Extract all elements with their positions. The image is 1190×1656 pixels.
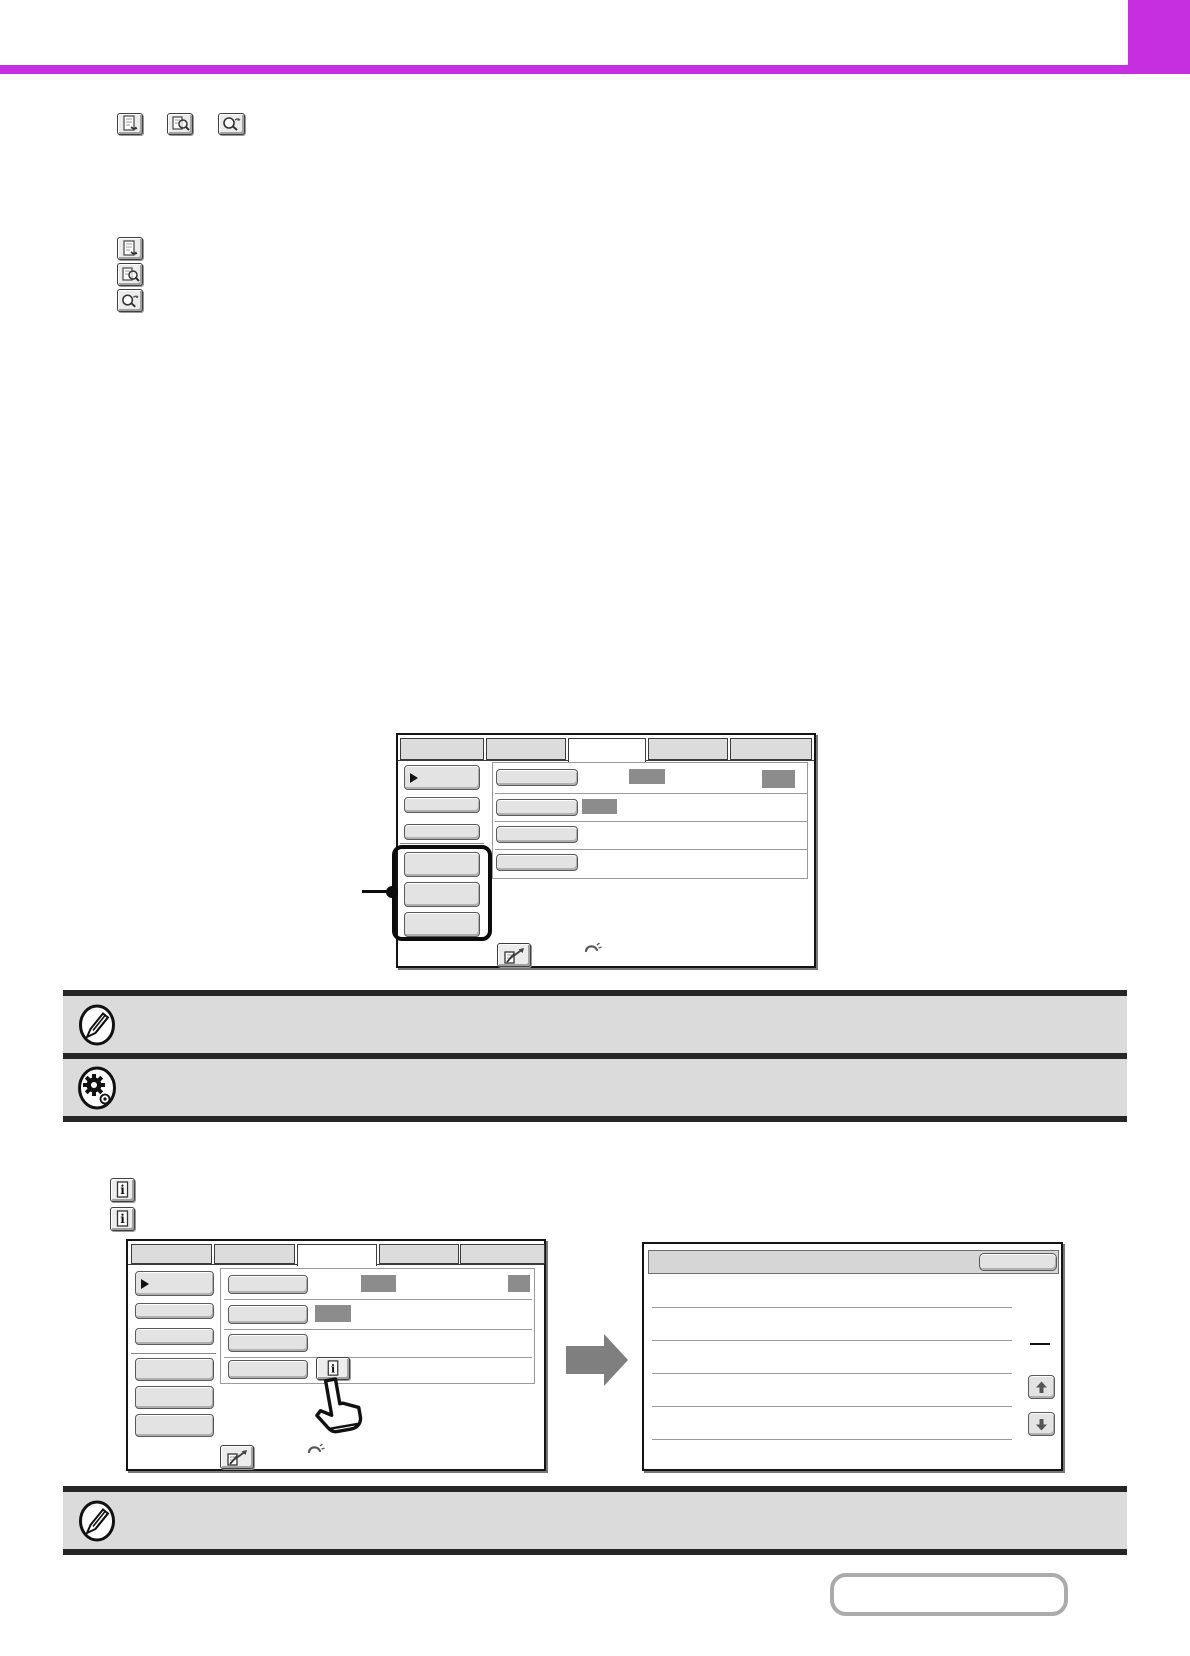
placeholder-block [762,770,795,788]
touch-screen-figure-2-right [642,1242,1063,1471]
note-border [63,1116,1127,1122]
information-key-icon: i [113,1209,132,1229]
row-button-2[interactable] [228,1305,308,1324]
note-section-bottom [63,1486,1127,1555]
page-number-box[interactable] [830,1573,1068,1616]
document-magnifier-key[interactable] [167,113,193,135]
transition-right-arrow-icon [566,1334,628,1386]
menu-divider [400,843,484,844]
placeholder-block [361,1275,396,1292]
screen-header-bar [648,1250,1059,1274]
document-send-key-icon [500,945,528,965]
list-separator [652,1406,1012,1407]
document-magnifier-key[interactable] [117,263,143,286]
tab-4[interactable] [379,1244,459,1264]
list-separator [652,1439,1012,1440]
tab-4[interactable] [648,738,728,760]
row-separator [495,821,807,822]
row-button-1[interactable] [228,1275,308,1294]
svg-text:i: i [120,1212,125,1226]
menu-button-4[interactable] [135,1358,214,1381]
menu-divider [131,1353,216,1354]
row-separator [224,1329,532,1330]
menu-button-6[interactable] [135,1414,214,1437]
row-separator [495,849,807,850]
row-button-4[interactable] [496,854,578,871]
note-section [63,990,1127,1122]
row-button-1[interactable] [496,769,578,786]
file-key-icon [119,115,141,133]
menu-button-2[interactable] [135,1303,214,1319]
row-separator [224,1299,532,1300]
file-key[interactable] [117,113,143,135]
tab-2[interactable] [214,1244,295,1264]
placeholder-block [315,1305,351,1322]
down-arrow-icon [1034,1417,1049,1432]
list-separator [652,1373,1012,1374]
pencil-note-icon [78,1004,116,1046]
svg-text:i: i [120,1183,125,1197]
document-send-key[interactable] [220,1445,254,1469]
list-separator [652,1340,1012,1341]
tab-5[interactable] [730,738,812,760]
magnifier-key-icon [220,115,243,133]
row-button-3[interactable] [496,826,578,843]
menu-button-3[interactable] [135,1328,214,1345]
phone-icon [584,941,602,957]
note-bar-settings [63,1059,1127,1116]
accent-corner-block [1128,0,1190,74]
information-key[interactable]: i [110,1178,135,1202]
magnifier-key-icon [119,292,141,310]
document-magnifier-key-icon [169,115,191,133]
page-indicator-dash [1030,1343,1050,1345]
hand-cursor-icon [305,1372,370,1439]
menu-button-1[interactable] [404,765,480,790]
placeholder-block [582,799,617,814]
list-separator [652,1307,1012,1308]
svg-text:i: i [331,1361,336,1375]
tab-3-selected[interactable] [297,1244,377,1266]
scroll-up-button[interactable] [1028,1375,1055,1399]
file-key[interactable] [117,237,143,260]
accent-top-bar [0,65,1190,74]
row-button-4[interactable] [228,1360,308,1379]
magnifier-key[interactable] [117,289,143,312]
file-key-icon [119,240,141,258]
note-bar-pencil [63,996,1127,1053]
row-separator [224,1357,532,1358]
right-triangle-icon [141,1279,149,1289]
tab-1[interactable] [131,1244,212,1264]
phone-icon [307,1442,325,1458]
settings-panel [492,762,808,879]
row-button-3[interactable] [228,1334,308,1352]
document-magnifier-key-icon [119,266,141,284]
placeholder-block [629,769,665,784]
manual-page: i i [0,0,1190,1656]
settings-panel: i [220,1268,535,1384]
document-send-key-icon [223,1447,251,1467]
row-button-2[interactable] [496,799,578,816]
pencil-note-icon [78,1500,116,1542]
highlight-box [392,845,492,941]
touch-screen-figure-2-left: i [126,1239,546,1471]
tab-3-selected[interactable] [568,738,646,762]
right-triangle-icon [410,773,418,783]
note-bar-pencil [63,1492,1127,1549]
menu-button-5[interactable] [135,1386,214,1409]
header-button[interactable] [979,1253,1057,1271]
tab-2[interactable] [486,738,566,760]
placeholder-block [508,1275,530,1292]
menu-button-3[interactable] [404,824,480,840]
tab-5[interactable] [460,1244,545,1264]
menu-button-1[interactable] [135,1271,214,1296]
menu-button-2[interactable] [404,797,480,813]
tab-1[interactable] [400,738,484,760]
gear-settings-icon [77,1066,117,1110]
information-key-icon: i [113,1180,132,1200]
information-key[interactable]: i [110,1207,135,1231]
scroll-down-button[interactable] [1028,1412,1055,1436]
note-border [63,1549,1127,1555]
row-separator [495,793,807,794]
document-send-key[interactable] [497,943,531,967]
up-arrow-icon [1034,1380,1049,1395]
magnifier-key[interactable] [218,113,245,135]
